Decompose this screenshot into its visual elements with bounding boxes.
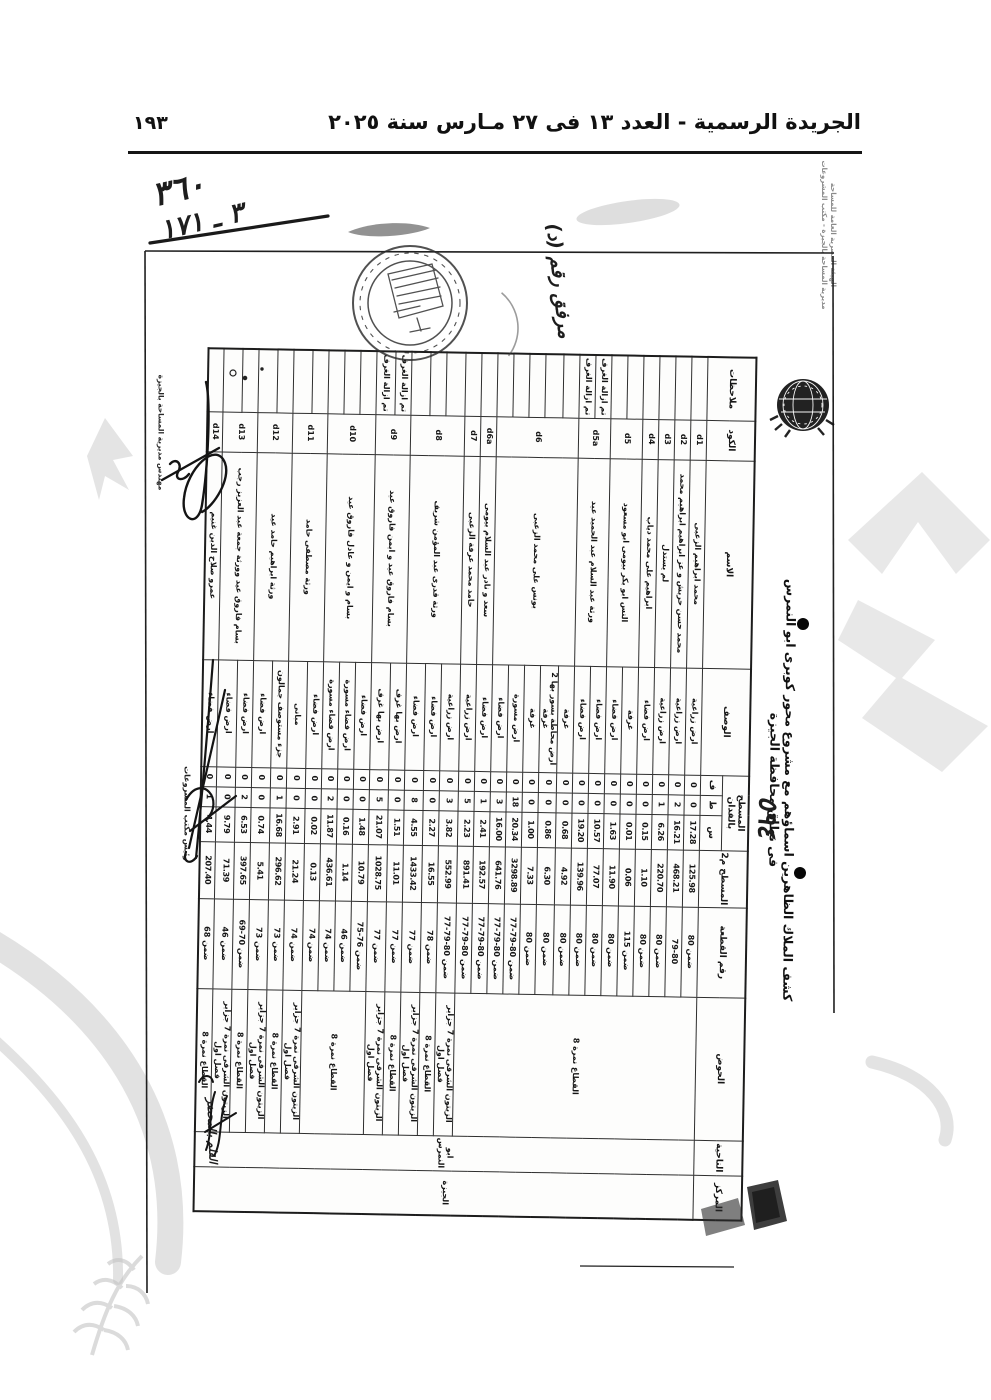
plot-number-cell: ضمن 80 xyxy=(633,906,651,996)
code-cell: d6a xyxy=(480,416,497,456)
area-feddan-cell: 0 xyxy=(270,767,286,787)
note-cell xyxy=(544,354,564,417)
area-m2-cell: 16.55 xyxy=(421,845,438,902)
owner-name-cell: النس ابو بكر بيومى ابو مسعود xyxy=(607,458,643,667)
area-m2-cell: 436.61 xyxy=(319,843,336,900)
area-sahm-cell: 0.01 xyxy=(620,813,637,848)
agency-line-1: الهيئة المصرية العامة للمساحة xyxy=(828,140,837,330)
owner-name-cell: بسام فاروق عيد وورثة جمعة عبد العزيز رجب xyxy=(219,451,258,660)
description-cell: ارض فضاء xyxy=(605,666,623,773)
area-sahm-cell: 19.20 xyxy=(572,813,589,848)
area-m2-cell: 4.92 xyxy=(555,847,572,904)
description-cell: ارض فضاء xyxy=(589,666,607,773)
punch-dot xyxy=(797,618,809,630)
area-qirat-cell: 0 xyxy=(538,792,557,812)
area-sahm-cell: 10.57 xyxy=(588,813,605,848)
area-qirat-cell: 1 xyxy=(652,794,668,814)
description-cell: ارض فضاء xyxy=(252,660,273,767)
note-cell xyxy=(675,356,692,419)
ownership-table-wrapper: المركز الناحية الحوض رقم القطعة المسطح م… xyxy=(200,347,758,1219)
basin-cell: القطاع نمرة 8 xyxy=(229,989,247,1132)
area-sahm-cell: 16.68 xyxy=(269,807,286,842)
area-sahm-cell: 1.51 xyxy=(387,809,404,844)
plot-number-cell: ضمن 77 xyxy=(401,902,421,992)
area-sahm-cell: 4.55 xyxy=(403,810,423,845)
chevron-watermark xyxy=(838,472,990,772)
gazette-header: الجريدة الرسمية - العدد ١٣ فى ٢٧ مـارس س… xyxy=(0,108,991,152)
owner-name-cell: بسام فاروق عيد و ايمن فاروق عيد xyxy=(371,454,410,663)
handwritten-number: ٥٩٤ xyxy=(747,784,783,849)
col-header-area-m2: المسطح م2 xyxy=(699,850,748,908)
col-header-desc: الوصف xyxy=(701,668,751,776)
attachment-note: مرفق رقم (د) xyxy=(538,220,576,342)
code-cell: d5a xyxy=(579,418,612,459)
area-sahm-cell: 16.21 xyxy=(668,814,685,849)
area-qirat-cell: 8 xyxy=(404,790,423,810)
note-cell xyxy=(497,353,514,416)
area-m2-cell: 296.62 xyxy=(268,842,285,899)
area-feddan-cell: 0 xyxy=(235,767,251,787)
area-sahm-cell: 4.44 xyxy=(200,806,217,841)
plot-number-cell: ضمن 80 xyxy=(553,904,571,994)
area-qirat-cell: 0 xyxy=(684,795,700,815)
area-feddan-cell: 0 xyxy=(605,773,621,793)
gazette-title: الجريدة الرسمية - العدد ١٣ فى ٢٧ مـارس س… xyxy=(328,110,861,134)
note-cell: تم ازالة الغرف xyxy=(595,355,612,418)
note-cell xyxy=(344,351,361,414)
area-sahm-cell: 0.15 xyxy=(636,814,653,849)
area-m2-cell: 1028.75 xyxy=(367,844,387,901)
code-cell: d10 xyxy=(327,413,376,454)
survey-authority-emblem xyxy=(770,379,834,437)
area-feddan-cell: 0 xyxy=(217,766,236,786)
note-cell xyxy=(293,350,313,413)
note-cell xyxy=(258,349,278,412)
description-cell: ارض بها غرف xyxy=(370,662,391,769)
description-cell: ارض فضاء xyxy=(201,659,219,766)
basin-cell: القطاع نمرة 8 xyxy=(417,992,435,1135)
area-sahm-cell: 6.53 xyxy=(235,807,252,842)
area-qirat-cell: 0 xyxy=(305,788,321,808)
description-cell: ارض زراعية xyxy=(669,667,687,774)
owner-name-cell: ورثة ابراهيم حامد عيد xyxy=(254,452,293,661)
note-cell xyxy=(481,353,498,416)
code-cell: d9 xyxy=(375,414,411,455)
area-qirat-cell: 0 xyxy=(216,786,235,806)
area-sahm-cell: 21.07 xyxy=(368,809,388,844)
note-cell xyxy=(207,348,224,411)
area-qirat-cell: 2 xyxy=(668,794,684,814)
plot-number-cell: ضمن 80 xyxy=(601,905,619,995)
subcol-header-sahm: س xyxy=(700,815,723,850)
area-m2-cell: 552.99 xyxy=(437,845,457,902)
stamp-eagle-emblem xyxy=(388,264,443,332)
area-sahm-cell: 0.74 xyxy=(251,807,271,842)
description-cell: ارض فضاء مسورة xyxy=(322,661,340,768)
area-m2-cell: 7.33 xyxy=(520,847,537,904)
area-qirat-cell: 2 xyxy=(235,787,251,807)
note-cell xyxy=(513,354,530,417)
area-sahm-cell: 2.23 xyxy=(457,811,474,846)
area-m2-cell: 10.79 xyxy=(351,844,368,901)
area-m2-cell: 125.98 xyxy=(683,850,700,907)
area-qirat-cell: 1 xyxy=(474,791,490,811)
description-cell: ارض زراعية xyxy=(439,663,460,770)
area-sahm-cell: 6.26 xyxy=(652,814,669,849)
area-m2-cell: 11.90 xyxy=(603,848,620,905)
code-cell: d12 xyxy=(257,412,293,453)
plot-number-cell: ضمن 46 xyxy=(213,898,233,988)
area-feddan-cell: 0 xyxy=(404,770,423,790)
area-qirat-cell: 3 xyxy=(490,791,506,811)
plot-number-cell: ضمن 77 xyxy=(385,901,403,991)
area-qirat-cell: 0 xyxy=(286,788,305,808)
plot-number-cell: ضمن 74 xyxy=(283,900,303,990)
plot-number-cell: ضمن 74 xyxy=(302,900,320,990)
area-qirat-cell: 5 xyxy=(458,791,474,811)
ownership-table: المركز الناحية الحوض رقم القطعة المسطح م… xyxy=(192,347,757,1221)
gazette-page: الجريدة الرسمية - العدد ١٣ فى ٢٧ مـارس س… xyxy=(0,0,991,1400)
area-m2-cell: 207.40 xyxy=(199,841,216,898)
basin-cell: الزيتون الشرقى نمرة 7 جزاير فصل اول xyxy=(433,992,454,1135)
area-feddan-cell: 0 xyxy=(557,772,573,792)
plot-number-cell: ضمن 80-79-77 xyxy=(436,902,456,992)
area-m2-cell: 71.39 xyxy=(215,841,235,898)
area-qirat-cell: 0 xyxy=(522,792,538,812)
area-feddan-cell: 0 xyxy=(286,768,305,788)
area-sahm-cell: 2.41 xyxy=(473,811,490,846)
area-qirat-cell: 3 xyxy=(439,790,458,810)
description-cell: ارض زراعية xyxy=(458,664,476,771)
area-feddan-cell: 0 xyxy=(388,769,404,789)
col-header-basin: الحوض xyxy=(695,997,745,1141)
ink-streak xyxy=(348,223,430,236)
plot-number-cell: ضمن 78 xyxy=(420,902,438,992)
area-m2-cell: 139.96 xyxy=(571,848,588,905)
note-cell xyxy=(411,352,431,415)
area-feddan-cell: 0 xyxy=(522,772,538,792)
area-qirat-cell: 0 xyxy=(636,794,652,814)
col-header-nahia: الناحية xyxy=(694,1140,743,1176)
area-feddan-cell: 0 xyxy=(621,773,637,793)
area-m2-cell: 1.10 xyxy=(635,849,652,906)
area-m2-cell: 891.41 xyxy=(456,846,473,903)
area-m2-cell: 21.24 xyxy=(284,843,304,900)
area-qirat-cell: 18 xyxy=(506,791,522,811)
area-qirat-cell: 0 xyxy=(589,793,605,813)
owner-name-cell: بسام و ايمن و عادل فاروق عيد xyxy=(323,453,375,662)
area-m2-cell: 1.14 xyxy=(335,844,352,901)
note-cell xyxy=(223,348,243,411)
basin-cell: الزيتون الشرقى نمرة 7 جزاير فصل اول xyxy=(363,991,384,1134)
area-qirat-cell: 0 xyxy=(605,793,621,813)
agency-line-2: مديرية المساحة بالجيزة - مكتب المشروعات xyxy=(820,140,829,330)
area-qirat-cell: 5 xyxy=(369,789,388,809)
plot-number-cell: ضمن 80-79-77 xyxy=(454,903,472,993)
description-cell: ارض فضاء xyxy=(474,664,492,771)
area-m2-cell: 11.01 xyxy=(386,844,403,901)
area-sahm-cell: 16.00 xyxy=(489,811,506,846)
note-cell xyxy=(328,350,345,413)
area-m2-cell: 468.21 xyxy=(667,849,684,906)
code-cell: d11 xyxy=(292,413,328,454)
plot-number-cell: ضمن 46 xyxy=(334,901,352,991)
area-qirat-cell: 0 xyxy=(423,790,439,810)
basin-cell: الزيتون الشرقى نمرة 7 جزاير فصل اول xyxy=(398,992,419,1135)
area-qirat-cell: 0 xyxy=(557,792,573,812)
code-cell: d5 xyxy=(611,418,644,459)
area-qirat-cell: 0 xyxy=(251,787,270,807)
area-qirat-cell: 0 xyxy=(620,794,636,814)
area-sahm-cell: 0.02 xyxy=(304,808,321,843)
description-cell: غرفة xyxy=(621,667,639,774)
col-header-markaz: المركز xyxy=(693,1175,742,1221)
note-cell xyxy=(659,356,676,419)
area-feddan-cell: 0 xyxy=(653,774,669,794)
round-official-stamp xyxy=(353,246,467,360)
clerk-note: القلم بالمحضر xyxy=(191,1073,221,1189)
plot-number-cell: ضمن 80-79-77 xyxy=(502,903,520,993)
area-sahm-cell: 11.87 xyxy=(320,808,337,843)
code-cell: d7 xyxy=(464,416,481,456)
basin-cell: الزيتون الشرقى نمرة 7 جزاير فصل اول xyxy=(245,989,266,1132)
area-feddan-cell: 0 xyxy=(573,773,589,793)
description-cell: ارض فضاء xyxy=(423,663,441,770)
code-cell: d2 xyxy=(675,419,692,459)
area-sahm-cell: 1.00 xyxy=(521,812,538,847)
area-feddan-cell: 0 xyxy=(637,774,653,794)
owner-name-cell: ورثة مصطفى حامد xyxy=(289,453,328,662)
owner-name-cell: ورثة قدرى عبد المؤمن شريف xyxy=(406,455,463,664)
note-cell xyxy=(446,352,466,415)
description-cell: غرفة xyxy=(557,665,575,772)
area-sahm-cell: 1.48 xyxy=(352,809,369,844)
description-cell: ارض فضاء xyxy=(306,661,324,768)
owner-name-cell: ورثة عبد السلام عبد الحميد عيد xyxy=(575,458,611,667)
description-cell: ارض محاطة بسور بها 2 غرفة xyxy=(538,665,559,772)
col-header-code: الكود xyxy=(707,420,756,461)
code-cell: d13 xyxy=(222,411,258,452)
description-cell: ارض فضاء xyxy=(637,667,655,774)
area-qirat-cell: 0 xyxy=(388,789,404,809)
note-cell xyxy=(627,356,644,419)
area-sahm-cell: 20.34 xyxy=(505,811,522,846)
note-cell xyxy=(465,353,482,416)
note-cell xyxy=(529,354,546,417)
plot-number-cell: ضمن 80 xyxy=(534,904,554,994)
area-feddan-cell: 0 xyxy=(201,766,217,786)
area-feddan-cell: 0 xyxy=(369,769,388,789)
description-cell: جزء مستوصف جمالون xyxy=(271,660,289,767)
description-cell: ارض فضاء xyxy=(354,662,372,769)
area-qirat-cell: 1 xyxy=(270,787,286,807)
area-sahm-cell: 9.79 xyxy=(216,806,236,841)
description-cell: ارض فضاء مسورة xyxy=(338,662,356,769)
area-feddan-cell: 0 xyxy=(474,771,490,791)
note-cell: تم ازالة الغرف xyxy=(376,351,396,414)
note-cell: تم ازالة الغرف xyxy=(395,351,412,414)
description-cell: ارض زراعية xyxy=(685,668,703,775)
area-sahm-cell: 3.82 xyxy=(438,810,458,845)
area-qirat-cell: 2 xyxy=(321,788,337,808)
basin-cell: القطاع نمرة 8 xyxy=(264,989,282,1132)
description-cell: ارض فضاء xyxy=(405,663,426,770)
plot-number-cell: ضمن 68 xyxy=(197,898,215,988)
description-cell: ارض فضاء xyxy=(573,666,591,773)
area-feddan-cell: 0 xyxy=(423,770,439,790)
area-sahm-cell: 2.27 xyxy=(422,810,439,845)
plot-number-cell: ضمن 115 xyxy=(617,905,635,995)
plot-number-cell: ضمن 77 xyxy=(366,901,386,991)
col-header-name: الاسم xyxy=(703,460,755,669)
note-cell xyxy=(242,349,259,412)
note-cell xyxy=(360,351,377,414)
basin-cell: القطاع نمرة 8 xyxy=(452,993,697,1140)
note-cell xyxy=(643,356,660,419)
area-m2-cell: 641.76 xyxy=(488,846,505,903)
area-feddan-cell: 0 xyxy=(669,774,685,794)
subcol-header-feddan: ف xyxy=(701,775,723,795)
basin-cell: الزيتون الشرقى نمرة 7 جزاير فصل اول xyxy=(280,990,301,1133)
basin-cell: القطاع نمرة 8 xyxy=(382,991,400,1134)
header-rule xyxy=(128,151,862,154)
area-feddan-cell: 0 xyxy=(353,769,369,789)
plot-number-cell: 79-80 xyxy=(665,906,683,996)
col-header-area-feddan: المسطح بالفدان xyxy=(722,775,749,850)
area-m2-cell: 3298.89 xyxy=(504,846,521,903)
plot-number-cell: ضمن 80 xyxy=(518,904,536,994)
area-sahm-cell: 2.91 xyxy=(285,808,305,843)
note-cell: تم ازالة الغرف xyxy=(579,355,596,418)
area-feddan-cell: 0 xyxy=(538,772,557,792)
description-cell: ارض مسورة xyxy=(506,664,524,771)
code-cell: d3 xyxy=(659,419,676,459)
plot-number-cell: ضمن 70-69 xyxy=(232,899,250,989)
area-qirat-cell: 0 xyxy=(337,789,353,809)
area-m2-cell: 6.30 xyxy=(536,847,556,904)
plot-number-cell: ضمن 76-75 xyxy=(350,901,368,991)
code-cell: d1 xyxy=(691,420,708,460)
plot-number-cell: ضمن 73 xyxy=(267,899,285,989)
area-m2-cell: 220.70 xyxy=(651,849,668,906)
area-sahm-cell: 0.86 xyxy=(537,812,557,847)
wheat-watermark xyxy=(74,1256,148,1355)
description-cell: ارض فضاء xyxy=(490,664,508,771)
area-sahm-cell: 1.63 xyxy=(604,813,621,848)
area-sahm-cell: 0.16 xyxy=(336,809,353,844)
description-cell: ارض فضاء xyxy=(236,660,254,767)
area-feddan-cell: 0 xyxy=(305,768,321,788)
page-number: ١٩٣ xyxy=(133,112,168,134)
plot-number-cell: ضمن 74 xyxy=(318,900,336,990)
col-header-notes: ملاحظات xyxy=(707,357,756,421)
gray-smudge xyxy=(575,194,681,230)
area-feddan-cell: 0 xyxy=(321,768,337,788)
area-qirat-cell: 0 xyxy=(573,793,589,813)
area-m2-cell: 5.41 xyxy=(250,842,270,899)
area-feddan-cell: 0 xyxy=(439,770,458,790)
plot-number-cell: ضمن 80 xyxy=(649,906,667,996)
area-sahm-cell: 0.68 xyxy=(556,812,573,847)
area-m2-cell: 397.65 xyxy=(234,842,251,899)
plot-number-cell: ضمن 80 xyxy=(585,905,603,995)
area-sahm-cell: 17.28 xyxy=(684,815,701,850)
area-feddan-cell: 0 xyxy=(506,771,522,791)
area-m2-cell: 1433.42 xyxy=(402,845,422,902)
area-feddan-cell: 0 xyxy=(685,775,701,795)
basin-cell: القطاع نمرة 8 xyxy=(299,990,365,1134)
plot-number-cell: ضمن 80 xyxy=(569,905,587,995)
code-cell: d14 xyxy=(206,411,223,451)
description-cell: غرفة xyxy=(522,665,540,772)
area-m2-cell: 77.07 xyxy=(587,848,604,905)
col-header-plot: رقم القطعة xyxy=(697,907,747,998)
area-m2-cell: 0.06 xyxy=(619,848,636,905)
area-m2-cell: 0.13 xyxy=(303,843,320,900)
description-cell: ارض بها غرف xyxy=(389,662,407,769)
code-cell: d6 xyxy=(496,416,580,457)
plot-number-cell: ضمن 80-79-77 xyxy=(470,903,488,993)
area-feddan-cell: 0 xyxy=(490,771,506,791)
code-cell: d8 xyxy=(410,415,465,456)
plot-number-cell: ضمن 80-79-77 xyxy=(486,903,504,993)
left-margin-watermark xyxy=(87,418,133,500)
note-cell xyxy=(611,355,628,418)
subcol-header-qirat: ط xyxy=(700,795,722,815)
plot-number-cell: ضمن 73 xyxy=(248,899,268,989)
signature-title-projects: رئيس مكتب المشروعات xyxy=(177,739,192,889)
area-qirat-cell: 1 xyxy=(200,786,216,806)
owner-name-cell: يونس على محمد الزعبى xyxy=(492,456,579,665)
area-m2-cell: 192.57 xyxy=(472,846,489,903)
note-cell xyxy=(563,354,580,417)
description-cell: مبانى xyxy=(287,661,308,768)
area-qirat-cell: 0 xyxy=(353,789,369,809)
note-cell xyxy=(277,349,294,412)
agency-letterhead: الهيئة المصرية العامة للمساحة مديرية الم… xyxy=(803,140,837,330)
area-feddan-cell: 0 xyxy=(589,773,605,793)
area-feddan-cell: 0 xyxy=(458,771,474,791)
area-feddan-cell: 0 xyxy=(337,769,353,789)
code-cell: d4 xyxy=(643,419,660,459)
signature-title-survey: مهندس مديرية المساحة بالجيزة xyxy=(151,358,166,508)
note-cell xyxy=(312,350,329,413)
plot-number-cell: ضمن 80 xyxy=(681,907,699,997)
description-cell: ارض فضاء xyxy=(217,659,238,766)
note-cell xyxy=(430,352,447,415)
area-feddan-cell: 0 xyxy=(251,767,270,787)
description-cell: ارض زراعية xyxy=(653,667,671,774)
markaz-value: الجيزة xyxy=(193,1166,694,1220)
note-cell xyxy=(691,357,708,420)
